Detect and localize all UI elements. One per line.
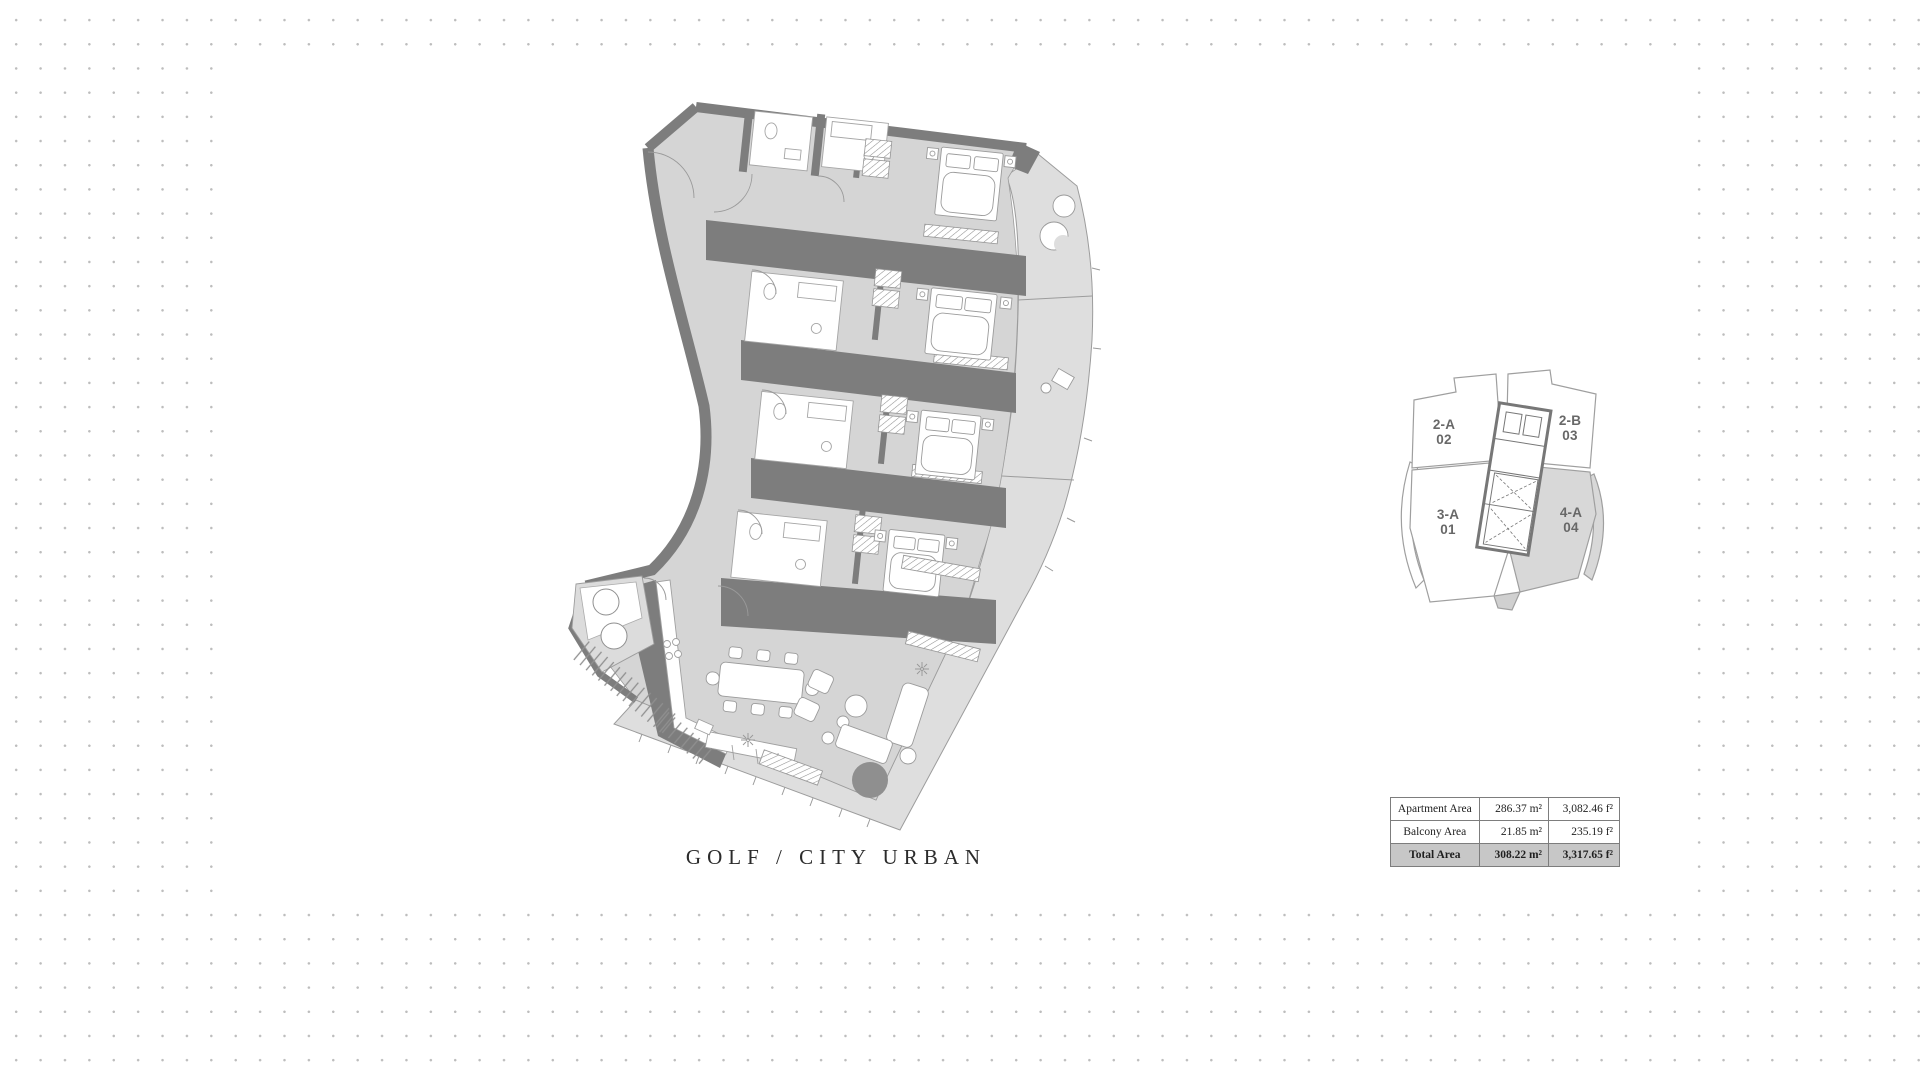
keyplan-tail: [1494, 592, 1520, 610]
floor-plan: [556, 88, 1116, 858]
round-rug: [852, 762, 888, 798]
key-plan: [1398, 366, 1613, 611]
area-label: Total Area: [1391, 844, 1480, 867]
area-imperial: 3,082.46 f²: [1548, 798, 1619, 821]
table-row-total: Total Area 308.22 m² 3,317.65 f²: [1391, 844, 1620, 867]
floor-plan-container: [556, 88, 1116, 858]
key-plan-unit-label: 4-A04: [1541, 506, 1601, 536]
area-metric: 21.85 m²: [1479, 821, 1548, 844]
area-imperial: 235.19 f²: [1548, 821, 1619, 844]
plan-caption: GOLF / CITY URBAN: [556, 845, 1116, 870]
area-table: Apartment Area 286.37 m² 3,082.46 f² Bal…: [1390, 797, 1620, 867]
page: { "caption": "GOLF / CITY URBAN", "keypl…: [0, 0, 1920, 1078]
key-plan-unit-label: 2-A02: [1414, 418, 1474, 448]
key-plan-unit-label: 2-B03: [1540, 414, 1600, 444]
area-metric: 308.22 m²: [1479, 844, 1548, 867]
key-plan-container: 2-A02 2-B03 3-A01 4-A04: [1398, 366, 1613, 611]
table-row-apartment: Apartment Area 286.37 m² 3,082.46 f²: [1391, 798, 1620, 821]
area-label: Apartment Area: [1391, 798, 1480, 821]
area-metric: 286.37 m²: [1479, 798, 1548, 821]
table-row-balcony: Balcony Area 21.85 m² 235.19 f²: [1391, 821, 1620, 844]
area-label: Balcony Area: [1391, 821, 1480, 844]
area-imperial: 3,317.65 f²: [1548, 844, 1619, 867]
key-plan-unit-label: 3-A01: [1418, 508, 1478, 538]
